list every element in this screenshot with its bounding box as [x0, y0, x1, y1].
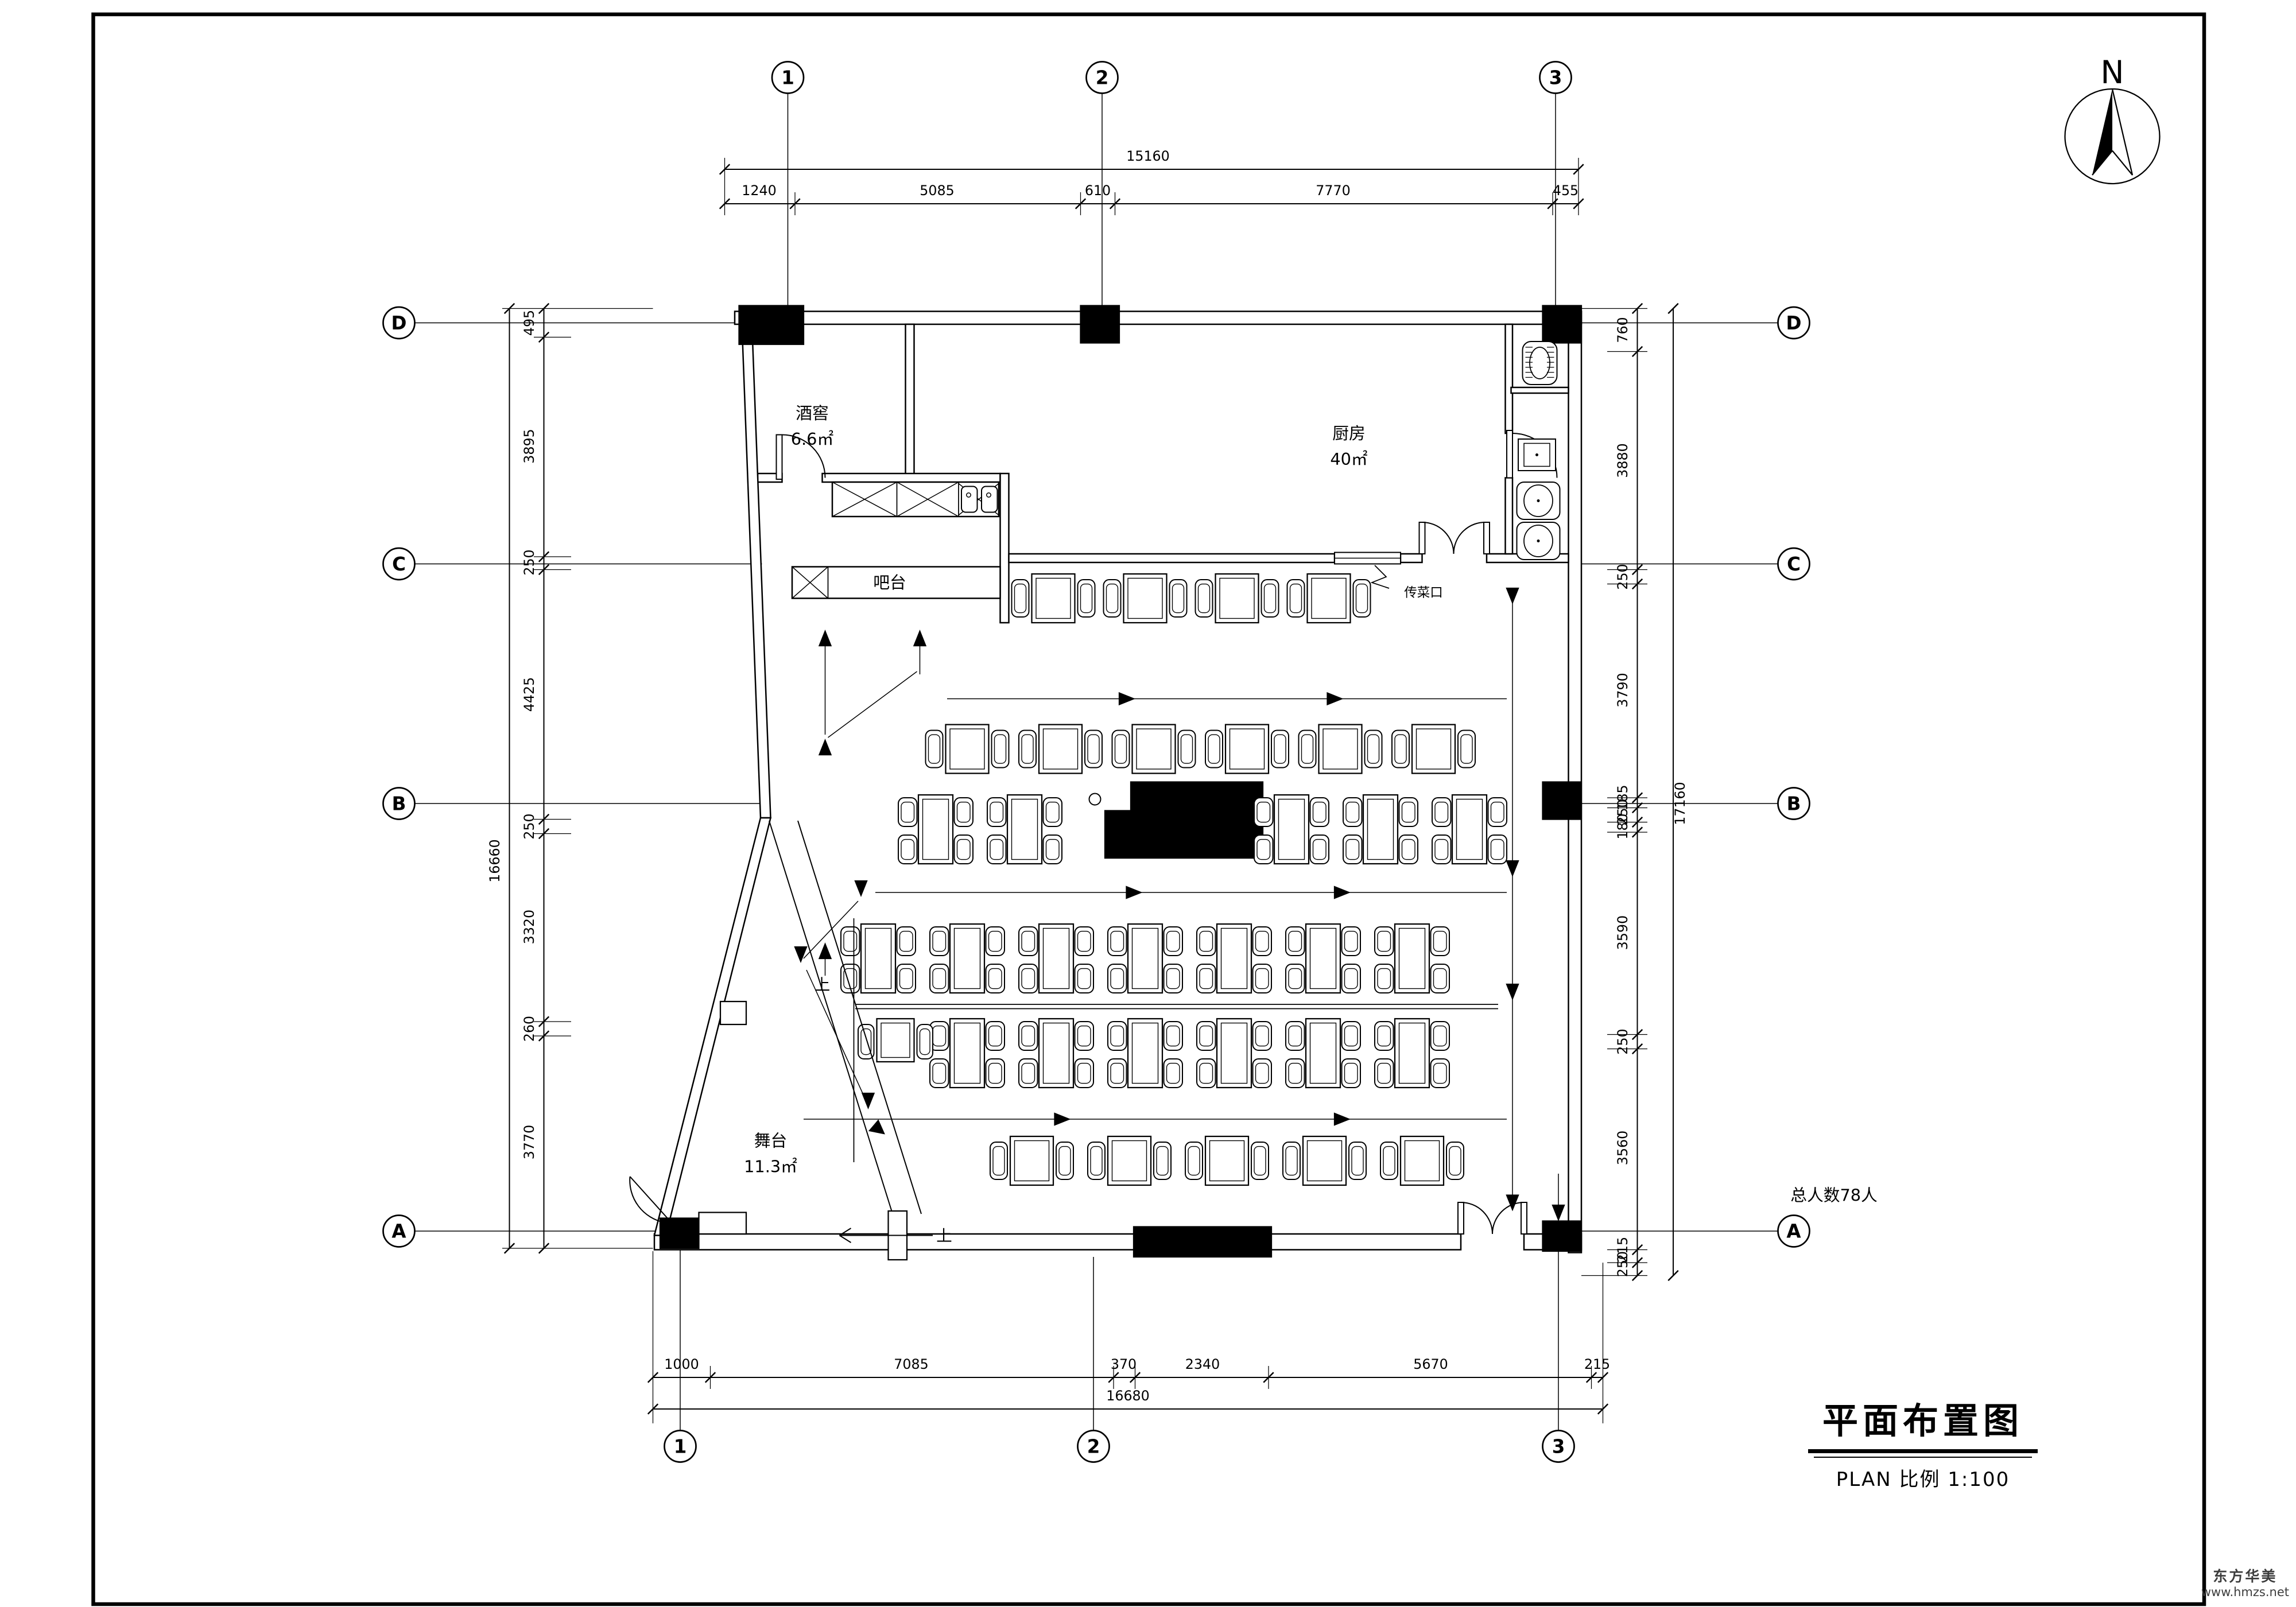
dim-label: 370: [1111, 1356, 1137, 1372]
dining-chair: [1167, 931, 1180, 952]
dining-chair: [1022, 931, 1035, 952]
dim-label: 250: [521, 813, 537, 839]
washbasin-dot: [1535, 453, 1538, 456]
dining-chair: [1491, 840, 1504, 860]
dining-chair: [1435, 840, 1448, 860]
dining-chair: [1015, 584, 1026, 613]
dining-chair: [989, 1026, 1002, 1046]
flow-arrow: [855, 881, 867, 895]
dining-table: [950, 729, 984, 769]
dining-chair: [1022, 1063, 1035, 1084]
dining-table: [1112, 1141, 1147, 1181]
dining-chair: [1345, 931, 1358, 952]
dining-chair: [1378, 931, 1391, 952]
dining-table: [1221, 1023, 1247, 1084]
door-arc: [1422, 522, 1454, 554]
dim-label: 16680: [1106, 1388, 1150, 1404]
door-leaf: [1420, 522, 1425, 554]
dim-label: 250: [521, 549, 537, 575]
wall: [1511, 387, 1569, 393]
dining-chair: [1356, 584, 1368, 613]
flow-arrow: [914, 631, 926, 646]
dim-label: 5085: [920, 183, 954, 199]
dining-chair: [1200, 1063, 1213, 1084]
grid-bubble-label: B: [392, 793, 406, 814]
dim-label: 3320: [521, 910, 537, 944]
dining-chair: [1181, 735, 1193, 763]
dining-chair: [1461, 735, 1472, 763]
door-leaf: [1484, 522, 1490, 554]
dining-chair: [901, 840, 914, 860]
dining-chair: [1345, 969, 1358, 989]
stage-front-block: [1134, 1227, 1271, 1257]
dining-chair: [1378, 969, 1391, 989]
north-indicator: N: [2065, 54, 2160, 184]
dim-label: 610: [1085, 183, 1111, 199]
dining-table: [1128, 579, 1162, 619]
door-arc: [1454, 522, 1487, 554]
dining-table: [955, 1023, 980, 1084]
dim-label: 3770: [521, 1125, 537, 1159]
dining-chair: [1173, 584, 1184, 613]
north-needle-outline: [2112, 89, 2132, 175]
dining-table: [866, 929, 891, 989]
wall: [735, 312, 1581, 325]
dining-chair: [1059, 1147, 1071, 1175]
wall: [1000, 473, 1009, 623]
dim-label: 7770: [1316, 183, 1350, 199]
toilet-dot: [1537, 499, 1540, 502]
dining-chair: [990, 802, 1003, 822]
dining-chair: [989, 969, 1002, 989]
annotation-label: 传菜口: [1404, 585, 1443, 600]
stair-step: [720, 1002, 746, 1024]
grid-bubble-label: B: [1787, 793, 1801, 814]
dining-chair: [1289, 1026, 1302, 1046]
dining-chair: [1346, 840, 1359, 860]
dining-chair: [1208, 735, 1220, 763]
dining-chair: [1289, 1063, 1302, 1084]
dining-table: [1221, 929, 1247, 989]
room-area-label: 40㎡: [1330, 449, 1368, 469]
dining-chair: [1368, 735, 1379, 763]
dining-chair: [1265, 584, 1276, 613]
room-label: 吧台: [873, 573, 906, 592]
dining-chair: [1256, 969, 1269, 989]
dim-label: 1000: [664, 1356, 699, 1372]
dining-chair: [1167, 1026, 1180, 1046]
dim-label: 4425: [521, 677, 537, 712]
room-area-label: 6.6㎡: [791, 429, 834, 449]
wall: [906, 324, 914, 479]
dim-label: 15160: [1126, 148, 1170, 164]
stage-edge: [798, 821, 921, 1214]
dining-chair: [1256, 931, 1269, 952]
dim-label: 455: [1553, 183, 1578, 199]
watermark-url: www.hmzs.net: [2201, 1585, 2289, 1599]
dining-chair: [1078, 1026, 1091, 1046]
dining-chair: [1345, 1026, 1358, 1046]
drawing-sheet: N 123123DCBADCBA151601240508561077704551…: [0, 0, 2296, 1607]
generated-plan: 123123DCBADCBA15160124050856107770455100…: [383, 62, 1878, 1462]
dining-table: [1399, 929, 1425, 989]
dining-table: [1044, 729, 1078, 769]
dining-chair: [1022, 969, 1035, 989]
dining-chair: [933, 969, 946, 989]
dim-label: 760: [1615, 317, 1631, 343]
grid-bubble-label: C: [392, 553, 406, 575]
dining-chair: [1257, 802, 1270, 822]
dining-chair: [1402, 840, 1415, 860]
column: [660, 1218, 699, 1249]
dining-table: [1210, 1141, 1244, 1181]
dining-chair: [1078, 1063, 1091, 1084]
dining-table: [1015, 1141, 1049, 1181]
room-label: 厨房: [1332, 424, 1366, 443]
dining-chair: [957, 840, 971, 860]
grid-bubble-label: 3: [1552, 1435, 1565, 1457]
dining-chair: [1286, 1147, 1297, 1175]
toilet-dot: [1537, 539, 1540, 542]
flow-arrow: [863, 1093, 874, 1108]
dining-chair: [1289, 969, 1302, 989]
dim-label: 3790: [1615, 673, 1631, 707]
door-leaf: [1521, 1202, 1527, 1234]
column: [1081, 306, 1120, 343]
column: [1543, 306, 1582, 343]
dining-chair: [901, 802, 914, 822]
grid-bubble-label: D: [1786, 312, 1802, 334]
room-label: 舞台: [754, 1131, 788, 1151]
dining-chair: [1346, 802, 1359, 822]
dining-chair: [1157, 1147, 1168, 1175]
dining-table: [881, 1023, 910, 1058]
dining-chair: [1256, 1063, 1269, 1084]
flow-arrow: [1507, 984, 1518, 999]
dining-chair: [1111, 1063, 1124, 1084]
flow-arrow: [820, 631, 831, 646]
feature-block: [1105, 782, 1263, 859]
dining-chair: [1274, 735, 1286, 763]
grid-bubble-label: 2: [1087, 1435, 1100, 1457]
dining-table: [1405, 1141, 1440, 1181]
flow-arrow: [1553, 1205, 1564, 1220]
dim-label: 5670: [1413, 1356, 1448, 1372]
flow-arrow: [1507, 1195, 1518, 1210]
dining-chair: [1378, 1026, 1391, 1046]
dining-table: [1312, 579, 1346, 619]
dining-chair: [1289, 931, 1302, 952]
grid-bubble-label: 1: [674, 1435, 687, 1457]
dining-chair: [993, 1147, 1004, 1175]
dining-chair: [1256, 1026, 1269, 1046]
flow-arrow: [1507, 588, 1518, 603]
dining-table: [1308, 1141, 1342, 1181]
dining-table: [1036, 579, 1071, 619]
dining-table: [1220, 579, 1254, 619]
flow-arrow: [1335, 1113, 1349, 1125]
dining-chair: [1046, 802, 1060, 822]
dim-label: 3880: [1615, 443, 1631, 478]
dining-chair: [1111, 969, 1124, 989]
dim-label: 1240: [742, 183, 776, 199]
grid-bubble-label: 3: [1549, 67, 1562, 88]
feature-dot: [1089, 794, 1101, 805]
dining-chair: [1434, 1063, 1447, 1084]
dining-table: [1133, 929, 1158, 989]
wall: [823, 473, 1000, 482]
dining-table: [1044, 1023, 1069, 1084]
dining-chair: [1254, 1147, 1266, 1175]
dining-table: [923, 799, 949, 860]
leader-line: [1372, 565, 1389, 588]
dim-label: 7085: [894, 1356, 928, 1372]
dining-chair: [900, 969, 913, 989]
flow-arrow: [1127, 887, 1141, 898]
title-underline: [1814, 1453, 2032, 1458]
wall: [1009, 554, 1335, 562]
grid-bubble-label: 1: [781, 67, 794, 88]
dining-chair: [1115, 735, 1127, 763]
dining-chair: [1200, 931, 1213, 952]
dining-chair: [1081, 584, 1092, 613]
dim-label: 3895: [521, 429, 537, 463]
dining-chair: [900, 931, 913, 952]
dim-label: 250: [1615, 1028, 1631, 1054]
dining-chair: [1352, 1147, 1363, 1175]
dining-chair: [1290, 584, 1302, 613]
dining-chair: [1383, 1147, 1395, 1175]
grid-bubble-label: 2: [1096, 67, 1109, 88]
dining-chair: [1022, 735, 1033, 763]
dining-chair: [933, 1063, 946, 1084]
dining-table: [1310, 929, 1336, 989]
dim-label: 495: [521, 310, 537, 336]
dining-table: [1417, 729, 1451, 769]
dim-label: 17160: [1672, 782, 1688, 825]
dining-chair: [995, 735, 1006, 763]
sink-bowl: [982, 487, 998, 513]
grid-bubble-label: C: [1787, 553, 1801, 575]
title-block: 平面布置图 PLAN 比例 1:100: [1808, 1392, 2038, 1492]
dining-chair: [1302, 735, 1313, 763]
door-leaf: [630, 1177, 669, 1220]
dining-chair: [1088, 735, 1099, 763]
door-leaf: [1458, 1202, 1464, 1234]
dim-label: 250: [1615, 564, 1631, 589]
wall: [1506, 324, 1513, 433]
dining-chair: [1402, 802, 1415, 822]
dining-chair: [1257, 840, 1270, 860]
dining-chair: [957, 802, 971, 822]
dining-chair: [1200, 1026, 1213, 1046]
wall: [1401, 554, 1422, 562]
dining-chair: [920, 1029, 930, 1055]
dining-chair: [1199, 584, 1210, 613]
drawing-scale: PLAN 比例 1:100: [1808, 1464, 2038, 1492]
dining-chair: [1078, 969, 1091, 989]
dining-chair: [989, 931, 1002, 952]
dining-table: [1399, 1023, 1425, 1084]
dining-table: [1323, 729, 1358, 769]
dining-table: [1137, 729, 1171, 769]
dining-table: [1279, 799, 1305, 860]
wall: [1506, 478, 1513, 554]
flow-arrow: [820, 944, 831, 958]
dim-label: 2340: [1185, 1356, 1220, 1372]
dining-chair: [1091, 1147, 1102, 1175]
door-arc: [1492, 1202, 1524, 1234]
grid-bubble-label: A: [391, 1220, 406, 1242]
dining-chair: [844, 931, 857, 952]
dining-chair: [1435, 802, 1448, 822]
dining-chair: [1449, 1147, 1461, 1175]
dining-chair: [1022, 1026, 1035, 1046]
door-leaf: [1507, 430, 1512, 478]
dining-chair: [1188, 1147, 1200, 1175]
dining-chair: [1111, 931, 1124, 952]
dining-chair: [1434, 969, 1447, 989]
flow-arrow: [820, 740, 831, 755]
flow-arrow: [1507, 861, 1518, 875]
stage-edge: [769, 821, 893, 1214]
dining-chair: [990, 840, 1003, 860]
dining-chair: [933, 931, 946, 952]
flow-arrow: [1328, 693, 1342, 705]
dining-chair: [929, 735, 940, 763]
dining-chair: [1378, 1063, 1391, 1084]
annotation-label: 上: [815, 976, 831, 994]
stair-step: [699, 1213, 747, 1235]
dining-chair: [1107, 584, 1118, 613]
dim-label: 215: [1584, 1356, 1610, 1372]
dim-label: 180: [1615, 813, 1631, 839]
flow-arrow: [870, 1121, 884, 1134]
floor-plan-svg: N 123123DCBADCBA151601240508561077704551…: [0, 0, 2296, 1607]
north-label: N: [2100, 54, 2124, 91]
flow-arrow: [795, 947, 806, 961]
dim-label: 260: [521, 1016, 537, 1042]
dining-chair: [989, 1063, 1002, 1084]
dining-chair: [1345, 1063, 1358, 1084]
room-area-label: 11.3㎡: [744, 1157, 797, 1177]
dining-chair: [1491, 802, 1504, 822]
dim-label: 16660: [487, 839, 503, 883]
flow-arrow: [1335, 887, 1349, 898]
dim-label: 3590: [1615, 915, 1631, 950]
annotation-label: 上: [936, 1227, 952, 1245]
dining-chair: [1395, 735, 1406, 763]
sink-bowl: [961, 487, 978, 513]
dim-label: 3560: [1615, 1131, 1631, 1165]
dining-table: [1230, 729, 1265, 769]
dining-table: [1310, 1023, 1336, 1084]
floor-drain: [1523, 341, 1557, 385]
column: [1543, 1221, 1582, 1252]
dining-chair: [1111, 1026, 1124, 1046]
dining-chair: [1200, 969, 1213, 989]
dining-chair: [1313, 840, 1327, 860]
drawing-title: 平面布置图: [1808, 1392, 2038, 1453]
column: [739, 306, 804, 345]
flow-arrow: [1119, 693, 1134, 705]
door-arc: [1461, 1202, 1492, 1234]
room-label: 酒窖: [796, 403, 829, 423]
dining-table: [1133, 1023, 1158, 1084]
wall-slanted: [742, 324, 771, 818]
watermark-name: 东方华美: [2201, 1569, 2289, 1585]
dining-table: [1044, 929, 1069, 989]
dining-chair: [1434, 931, 1447, 952]
grid-bubble-label: A: [1786, 1220, 1801, 1242]
door-leaf: [777, 435, 782, 480]
dim-label: 250: [1615, 1251, 1631, 1277]
dining-table: [1457, 799, 1483, 860]
dining-chair: [933, 1026, 946, 1046]
flow-arrow: [1055, 1113, 1069, 1125]
dining-chair: [1078, 931, 1091, 952]
dining-chair: [1167, 969, 1180, 989]
wall: [654, 1234, 1461, 1250]
dining-chair: [1046, 840, 1060, 860]
grid-bubble-label: D: [391, 312, 407, 334]
dining-table: [1012, 799, 1038, 860]
watermark: 东方华美 www.hmzs.net: [2201, 1569, 2289, 1599]
dining-chair: [1434, 1026, 1447, 1046]
column: [1543, 782, 1582, 820]
dining-chair: [1167, 1063, 1180, 1084]
annotation-label: 总人数78人: [1790, 1186, 1878, 1205]
dining-table: [955, 929, 980, 989]
dining-table: [1368, 799, 1394, 860]
dining-chair: [1313, 802, 1327, 822]
flow-line: [828, 671, 917, 737]
